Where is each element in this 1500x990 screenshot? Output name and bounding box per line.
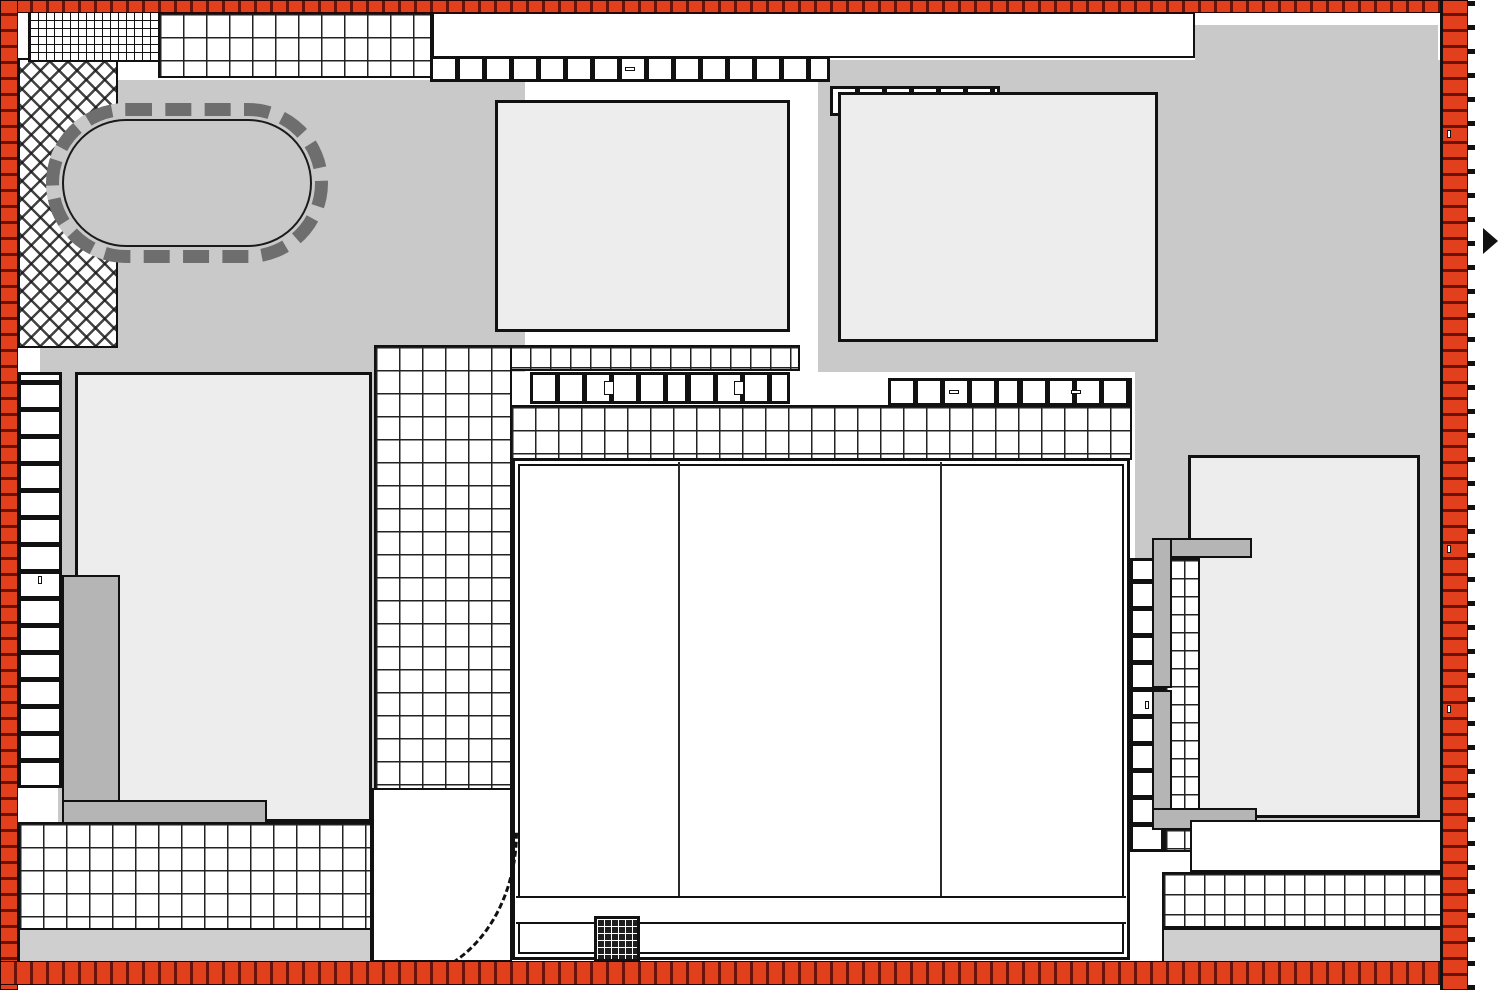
balcony-top-label: [625, 67, 635, 71]
technical-terrace-center-east: [838, 92, 1158, 342]
balcony-r3: [1020, 378, 1132, 406]
hall-ella-entrance-oval: [46, 103, 328, 263]
terrace-bottom-right: [1162, 872, 1445, 928]
garden-central: [512, 458, 1130, 960]
garden-drain-grate: [594, 916, 640, 962]
garden-wire-east: [940, 462, 942, 898]
balcony-east-mid-label: [1145, 701, 1149, 709]
planter-strip: [1190, 820, 1445, 872]
limit-border-right: [1440, 0, 1468, 990]
balcony-r4: [888, 378, 1020, 406]
technical-terrace-east-label: [1211, 482, 1401, 501]
balcony-r4-label: [949, 390, 959, 394]
garden-wire-west: [678, 462, 680, 898]
garden-north: [432, 12, 1195, 58]
right-margin-ticks: [1468, 0, 1475, 990]
terrace-top-left: [158, 12, 432, 78]
balcony-r3-label: [1071, 390, 1081, 394]
terrace-non-accessible-left: [18, 928, 372, 964]
balcony-b4-label: [734, 381, 744, 395]
balcony-edge-top-label: [1447, 130, 1451, 138]
balcony-edge-mid-label: [1447, 545, 1451, 553]
terrace-mid-strip: [468, 345, 800, 371]
balcony-edge-low-label: [1447, 705, 1451, 713]
terrace-bottom-left: [18, 822, 372, 930]
balcony-west-edge: [18, 372, 62, 788]
terrace-non-accessible-right: [1162, 928, 1445, 964]
balcony-b1: [530, 372, 688, 404]
technical-terrace-east: [1188, 455, 1420, 818]
technical-terrace-center-west: [495, 100, 790, 332]
technical-terrace-west-label: [128, 533, 318, 552]
balcony-b4: [688, 372, 790, 404]
limit-border-bottom: [0, 961, 1445, 985]
balcony-b1-label: [604, 381, 614, 395]
limit-border-left: [0, 0, 18, 990]
balcony-west-edge-label: [38, 576, 42, 584]
balcony-top: [430, 56, 830, 82]
terrace-rdc-haut-center: [510, 405, 1132, 460]
site-plan: [0, 0, 1500, 990]
limit-border-top: [0, 0, 1445, 13]
east-wall-top-v: [1152, 538, 1172, 688]
paving-crosshatch-area: [28, 10, 160, 62]
northeast-block: [1195, 25, 1438, 177]
